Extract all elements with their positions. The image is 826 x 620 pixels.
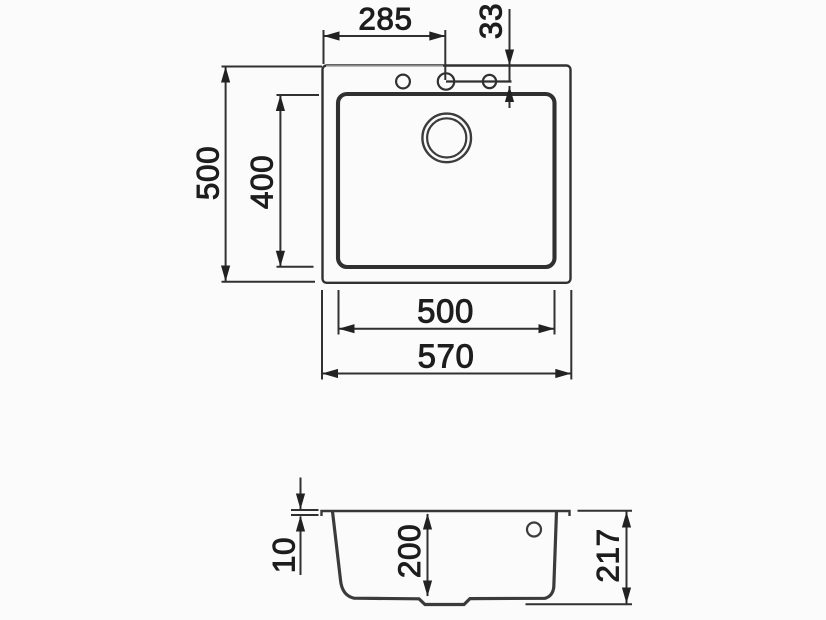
svg-text:570: 570 (418, 338, 475, 375)
svg-text:200: 200 (391, 524, 427, 578)
svg-text:500: 500 (417, 293, 474, 330)
svg-text:217: 217 (590, 528, 626, 582)
svg-text:33: 33 (473, 3, 509, 39)
svg-text:500: 500 (190, 146, 226, 200)
svg-text:285: 285 (358, 1, 412, 37)
svg-text:10: 10 (266, 537, 302, 573)
svg-text:400: 400 (244, 155, 280, 209)
